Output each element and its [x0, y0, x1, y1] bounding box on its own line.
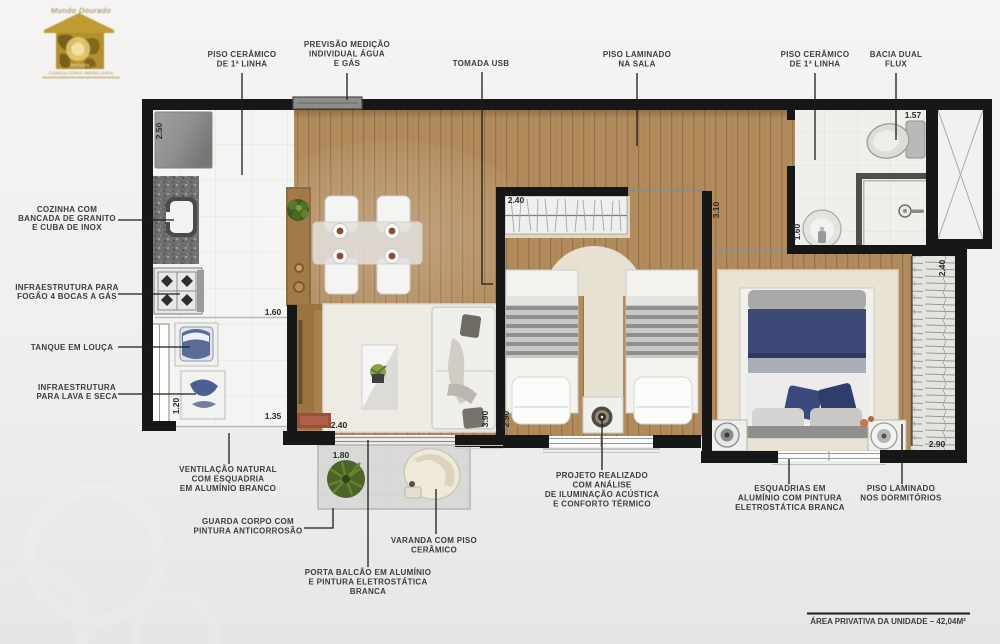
svg-text:INFRAESTRUTURA PARA: INFRAESTRUTURA PARA	[15, 283, 118, 292]
svg-text:E PINTURA ELETROSTÁTICA: E PINTURA ELETROSTÁTICA	[308, 578, 427, 587]
svg-text:1.35: 1.35	[265, 411, 282, 421]
svg-text:2.40: 2.40	[937, 259, 947, 276]
svg-text:GUARDA CORPO COM: GUARDA CORPO COM	[202, 517, 294, 526]
svg-text:COZINHA COM: COZINHA COM	[37, 205, 97, 214]
svg-text:ÁREA PRIVATIVA DA UNIDADE – 42: ÁREA PRIVATIVA DA UNIDADE – 42,04M²	[810, 617, 966, 626]
svg-text:PISO CERÂMICO: PISO CERÂMICO	[781, 50, 850, 59]
svg-text:E CONFORTO TÉRMICO: E CONFORTO TÉRMICO	[553, 500, 651, 509]
svg-text:VENTILAÇÃO NATURAL: VENTILAÇÃO NATURAL	[179, 465, 277, 474]
svg-text:E GÁS: E GÁS	[334, 59, 361, 68]
svg-text:PISO LAMINADO: PISO LAMINADO	[603, 50, 671, 59]
svg-text:INDIVIDUAL ÁGUA: INDIVIDUAL ÁGUA	[309, 50, 385, 59]
svg-text:INFRAESTRUTURA: INFRAESTRUTURA	[38, 383, 116, 392]
svg-text:2.90: 2.90	[929, 439, 946, 449]
svg-text:PORTA BALCÃO EM ALUMÍNIO: PORTA BALCÃO EM ALUMÍNIO	[305, 568, 431, 577]
svg-text:TOMADA USB: TOMADA USB	[453, 59, 510, 68]
svg-text:COM ANÁLISE: COM ANÁLISE	[572, 481, 631, 490]
svg-text:PROJETO REALIZADO: PROJETO REALIZADO	[556, 471, 648, 480]
svg-text:TANQUE EM LOUÇA: TANQUE EM LOUÇA	[31, 343, 114, 352]
svg-text:ESQUADRIAS EM: ESQUADRIAS EM	[754, 484, 825, 493]
svg-text:Imóveis: Imóveis	[71, 63, 90, 69]
svg-text:EM ALUMÍNIO BRANCO: EM ALUMÍNIO BRANCO	[180, 484, 276, 493]
svg-text:1.60: 1.60	[265, 307, 282, 317]
svg-text:NA SALA: NA SALA	[618, 60, 655, 69]
svg-text:2.90: 2.90	[501, 410, 511, 427]
svg-text:BACIA DUAL: BACIA DUAL	[870, 50, 922, 59]
svg-text:2.40: 2.40	[508, 195, 525, 205]
svg-text:COM ESQUADRIA: COM ESQUADRIA	[192, 475, 265, 484]
svg-text:3.10: 3.10	[711, 201, 721, 218]
svg-text:PARA LAVA E SECA: PARA LAVA E SECA	[36, 392, 117, 401]
svg-text:1.80: 1.80	[333, 450, 350, 460]
svg-text:BANCADA DE GRANITO: BANCADA DE GRANITO	[18, 214, 116, 223]
svg-text:1.60: 1.60	[792, 223, 802, 240]
svg-text:PREVISÃO MEDIÇÃO: PREVISÃO MEDIÇÃO	[304, 40, 390, 49]
svg-text:ELETROSTÁTICA BRANCA: ELETROSTÁTICA BRANCA	[735, 503, 845, 512]
svg-text:1.20: 1.20	[171, 397, 181, 414]
svg-text:CONSULTORIA IMOBILIARIA: CONSULTORIA IMOBILIARIA	[48, 71, 113, 76]
svg-text:PINTURA ANTICORROSÃO: PINTURA ANTICORROSÃO	[194, 527, 303, 536]
svg-text:DE 1ª LINHA: DE 1ª LINHA	[790, 60, 841, 69]
svg-text:Mundo Dourado: Mundo Dourado	[51, 6, 111, 15]
svg-text:FLUX: FLUX	[885, 60, 907, 69]
svg-text:BRANCA: BRANCA	[350, 587, 386, 596]
svg-text:DE ILUMINAÇÃO ACÚSTICA: DE ILUMINAÇÃO ACÚSTICA	[545, 490, 659, 499]
svg-text:2.50: 2.50	[154, 122, 164, 139]
svg-text:2.40: 2.40	[331, 420, 348, 430]
svg-text:ALUMÍNIO COM PINTURA: ALUMÍNIO COM PINTURA	[738, 494, 842, 503]
svg-text:3.90: 3.90	[480, 410, 490, 427]
svg-text:E CUBA DE INOX: E CUBA DE INOX	[32, 223, 102, 232]
svg-text:VARANDA COM PISO: VARANDA COM PISO	[391, 536, 477, 545]
svg-text:1.57: 1.57	[905, 110, 922, 120]
svg-text:PISO CERÂMICO: PISO CERÂMICO	[208, 50, 277, 59]
svg-text:PISO LAMINADO: PISO LAMINADO	[867, 484, 935, 493]
svg-text:DE 1ª LINHA: DE 1ª LINHA	[217, 60, 268, 69]
svg-text:FOGÃO 4 BOCAS A GÁS: FOGÃO 4 BOCAS A GÁS	[17, 292, 117, 301]
svg-text:NOS DORMITÓRIOS: NOS DORMITÓRIOS	[860, 494, 942, 503]
svg-text:CERÂMICO: CERÂMICO	[411, 546, 457, 555]
